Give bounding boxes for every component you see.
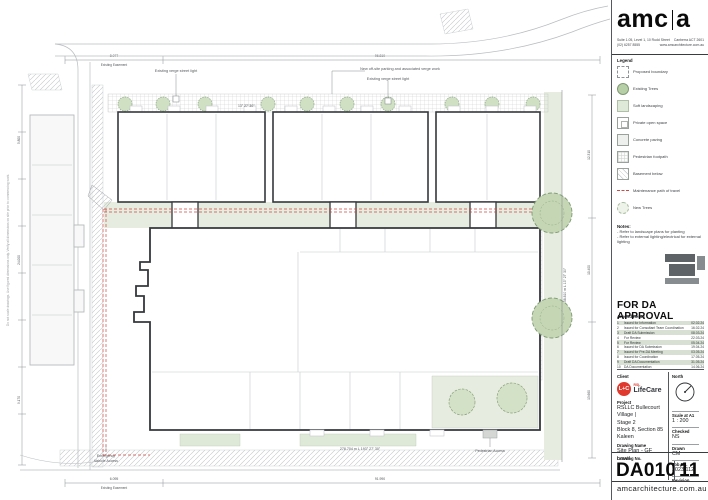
driveway-hatch-left	[92, 85, 103, 467]
new-tree-swatch	[617, 202, 629, 214]
project-line1: RSLLC Bullecourt Village |	[617, 405, 665, 420]
label-bearing-bottom: 278.704 m L 193° 27' 30"	[340, 447, 381, 451]
legend-item-soft-landscaping: Soft landscaping	[617, 97, 704, 114]
legend: Legend Proposed boundary Existing Trees …	[612, 58, 708, 216]
checked-value: NS	[672, 434, 699, 441]
drawing-no-value: DA010	[612, 461, 674, 480]
client-logo: L+C RSL LifeCare	[617, 382, 665, 396]
dim-top-a-sub: Existing Easement	[101, 63, 128, 67]
label-emergency-1: Emergency	[97, 454, 115, 458]
dim-left-a: 5.800	[17, 136, 21, 144]
checked-label: Checked	[672, 427, 699, 434]
dim-bottom-a: 6.095	[110, 477, 119, 481]
label-street-light-2: Existing verge street light	[367, 77, 410, 81]
amendment-row: 10DA Documentation14.06.24	[617, 365, 704, 370]
amendment-row: 3Draft DA Submission08.03.24	[617, 330, 704, 335]
dim-left-c: 9.170	[17, 396, 21, 404]
note-line: - Refer to external lighting/electrical …	[617, 234, 704, 244]
dimension-line-right	[588, 95, 596, 458]
north-arrow	[674, 381, 696, 403]
basement-swatch	[617, 168, 629, 180]
amendment-row: 7Issued for Pre-DA Meeting03.05.24	[617, 350, 704, 355]
dim-bottom-b: 91.990	[375, 477, 385, 481]
scale-value: 1 : 200	[672, 418, 699, 425]
project-line2: Stage 2	[617, 420, 665, 427]
legend-item-paving: Concrete paving	[617, 131, 704, 148]
logo-part2: a	[676, 7, 690, 32]
maintenance-path-swatch	[617, 190, 629, 191]
label-emergency-2: Vehicle Access	[94, 459, 118, 463]
project-line4: Kaleen	[617, 434, 665, 441]
landscape-strip-right	[544, 92, 562, 460]
drawn-label: Drawn	[672, 444, 699, 451]
firm-phone: (02) 6257 8555	[617, 43, 640, 48]
revision-value: 11	[674, 461, 708, 480]
legend-item-basement: Basement below	[617, 165, 704, 182]
client-project-block: Client L+C RSL LifeCare Project RSLLC Bu…	[612, 372, 708, 452]
street-light-symbol-1	[173, 96, 179, 102]
drawing-sheet: { "titleblock": { "logo": { "part1": "am…	[0, 0, 708, 500]
pedestrian-crossing-hatch	[440, 9, 473, 34]
amendment-row: 8Issued for Coordination17.05.24	[617, 355, 704, 360]
firm-logo: amca	[612, 7, 708, 32]
footpath-swatch	[617, 151, 629, 163]
road-top	[55, 6, 610, 56]
amendments-title: Amendments	[617, 314, 704, 319]
amendment-row: 5For Review05.04.24	[617, 340, 704, 345]
label-bearing-right: 58.810 m L 13° 27' 30"	[563, 267, 567, 302]
label-pedestrian: Pedestrian Access	[475, 449, 505, 453]
firm-web[interactable]: www.amcarchitecture.com.au	[660, 43, 704, 48]
label-new-parking: New off-site parking and associated verg…	[360, 67, 440, 71]
amendment-row: 1Issued for Information02.02.24	[617, 321, 704, 326]
project-line3: Block 8, Section 85	[617, 427, 665, 434]
footer-url[interactable]: amcarchitecture.com.au	[617, 484, 704, 493]
street-light-symbol-2	[385, 98, 391, 104]
amendment-row: 4For Review22.03.24	[617, 335, 704, 340]
courtyard-bottom-right	[432, 376, 538, 428]
brand-lifecare: LifeCare	[634, 387, 662, 394]
paving-swatch	[617, 134, 629, 146]
private-open-space-swatch	[617, 117, 629, 129]
legend-item-maintenance-path: Maintenance path of travel	[617, 182, 704, 199]
dim-left-b: 24.000	[17, 255, 21, 265]
site-plan: Do not scale drawings. Use figured dimen…	[0, 0, 611, 500]
soft-landscaping-swatch	[617, 100, 629, 112]
title-block: amca Suite 1.05, Level 1, 10 Rudd Street…	[611, 0, 708, 500]
north-label: North	[672, 374, 699, 379]
dim-right-b: 10.400	[587, 265, 591, 275]
planting-bed-2	[180, 434, 240, 446]
lifecare-badge: L+C	[617, 382, 631, 396]
logo-divider	[672, 10, 674, 30]
dimension-line-bottom	[65, 479, 600, 487]
dim-bottom-a-sub: Existing Easement	[101, 486, 128, 490]
legend-item-private-open-space: Private open space	[617, 114, 704, 131]
existing-building-left	[30, 115, 84, 365]
pedestrian-entry	[483, 430, 497, 438]
amendment-row: 9Draft DA Documentation31.05.24	[617, 360, 704, 365]
existing-tree-swatch	[617, 83, 629, 95]
footer-url-block: amcarchitecture.com.au	[612, 484, 708, 493]
dim-right-a: 12.310	[587, 150, 591, 160]
legend-item-existing-trees: Existing Trees	[617, 80, 704, 97]
amendment-row: 6Issued for DA Submission19.04.24	[617, 345, 704, 350]
site-plan-svg: Do not scale drawings. Use figured dimen…	[0, 0, 611, 500]
client-label: Client	[617, 374, 665, 379]
dimension-line-top	[65, 56, 600, 64]
legend-item-new-trees: New Trees	[617, 199, 704, 216]
margin-note: Do not scale drawings. Use figured dimen…	[6, 174, 10, 326]
drawing-number-block: Drawing No. DA010 11	[612, 454, 708, 480]
amendments: Amendments 1Issued for Information02.02.…	[612, 314, 708, 370]
crossing-hatch-topleft	[28, 74, 62, 90]
firm-contact: Suite 1.05, Level 1, 10 Rudd StreetCanbe…	[612, 38, 708, 48]
logo-part1: amc	[617, 7, 669, 32]
amendment-row: 2Issued for Consultant Team Coordination…	[617, 325, 704, 330]
legend-item-footpath: Pedestrian footpath	[617, 148, 704, 165]
dim-right-c: 13.660	[587, 390, 591, 400]
key-plan	[612, 252, 708, 286]
legend-item-boundary: Proposed boundary	[617, 63, 704, 80]
label-street-light-1: Existing verge street light	[155, 69, 198, 73]
label-bearing-top: 13° 27' 30"	[238, 104, 255, 108]
scale-label: Scale at A1	[672, 411, 699, 418]
notes: Notes: - Refer to landscape plans for pl…	[612, 224, 708, 244]
boundary-swatch	[617, 66, 629, 78]
